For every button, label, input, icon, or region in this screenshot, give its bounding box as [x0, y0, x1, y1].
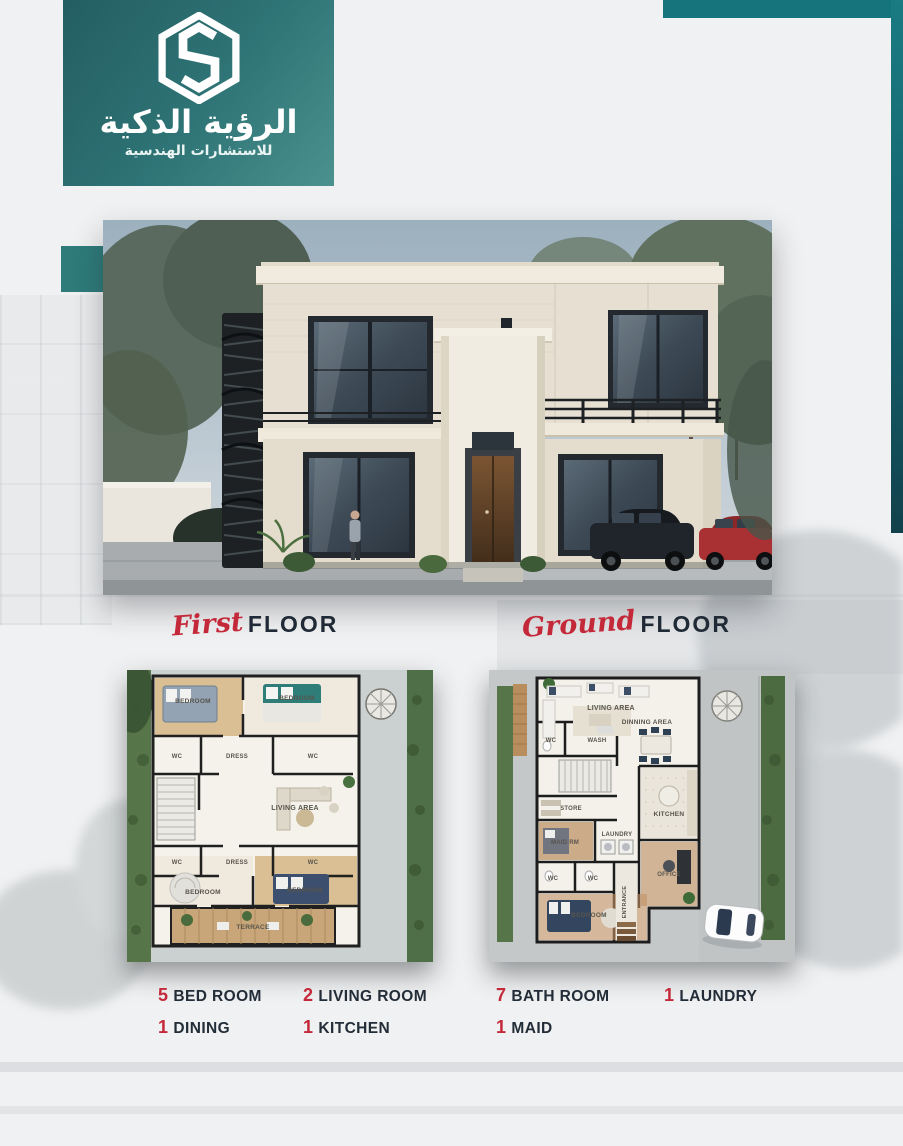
stat-laundry-count: 1: [664, 985, 674, 1005]
stat-kitchen-count: 1: [303, 1017, 313, 1037]
stat-bedrooms-label: BED ROOM: [173, 988, 261, 1005]
teal-accent-square: [61, 246, 107, 292]
external-spiral-stair: [712, 691, 742, 721]
stat-kitchen-label: KITCHEN: [318, 1020, 390, 1037]
room-label-wc: WC: [588, 876, 599, 882]
first-floor-plan: BEDROOM BEDROOM WC DRESS WC LIVING AREA …: [127, 670, 433, 962]
stat-living-rooms-count: 2: [303, 985, 313, 1005]
room-label-dress: DRESS: [226, 860, 248, 866]
watermark-step-band: [0, 1062, 903, 1072]
villa-render-photo: [103, 220, 772, 595]
right-edge-teal-strip: [891, 0, 903, 533]
room-label-store: STORE: [560, 806, 582, 812]
stat-dining: 1DINING: [158, 1017, 230, 1038]
first-floor-script: First: [171, 607, 244, 643]
room-label-bedroom: BEDROOM: [287, 887, 323, 894]
entrance-tower: [434, 328, 552, 568]
room-label-wc: WC: [308, 754, 319, 760]
external-spiral-stair: [366, 689, 396, 719]
stat-laundry-label: LAUNDRY: [679, 988, 757, 1005]
upper-window-left: [308, 316, 433, 424]
stat-kitchen: 1KITCHEN: [303, 1017, 390, 1038]
stat-maid-count: 1: [496, 1017, 506, 1037]
car: [702, 903, 766, 951]
ground-floor-label: GroundFLOOR: [522, 609, 712, 640]
ground-floor-word: FLOOR: [640, 611, 731, 637]
stat-dining-count: 1: [158, 1017, 168, 1037]
stat-bath-rooms-label: BATH ROOM: [511, 988, 609, 1005]
stat-dining-label: DINING: [173, 1020, 230, 1037]
room-label-wc: WC: [546, 738, 557, 744]
room-label-office: OFFICE: [657, 872, 681, 878]
room-label-dining-area: DINNING AREA: [622, 719, 672, 726]
ground-floor-plan: LIVING AREA DINNING AREA WC WASH STORE M…: [489, 670, 795, 962]
room-label-living-area: LIVING AREA: [587, 705, 635, 712]
room-label-bedroom: BEDROOM: [571, 912, 607, 919]
room-label-bedroom: BEDROOM: [279, 695, 315, 702]
first-floor-word: FLOOR: [248, 611, 339, 637]
logo-subtitle-arabic: للاستشارات الهندسية: [125, 143, 273, 159]
upper-window-right: [608, 310, 708, 408]
stat-living-rooms: 2LIVING ROOM: [303, 985, 427, 1006]
stat-laundry: 1LAUNDRY: [664, 985, 757, 1006]
stat-maid-label: MAID: [511, 1020, 552, 1037]
stat-bath-rooms-count: 7: [496, 985, 506, 1005]
poster-root: الرؤية الذكية للاستشارات الهندسية: [0, 0, 903, 1146]
room-label-dress: DRESS: [226, 754, 248, 760]
stairs: [157, 778, 195, 840]
first-floor-label: FirstFLOOR: [160, 609, 350, 640]
stat-bedrooms: 5BED ROOM: [158, 985, 262, 1006]
room-label-entrance: ENTRANCE: [622, 886, 628, 919]
room-label-bedroom: BEDROOM: [185, 889, 221, 896]
room-label-living-area: LIVING AREA: [271, 805, 319, 812]
stat-bedrooms-count: 5: [158, 985, 168, 1005]
stat-living-rooms-label: LIVING ROOM: [318, 988, 427, 1005]
stat-bath-rooms: 7BATH ROOM: [496, 985, 609, 1006]
room-label-maid: MAID RM: [551, 840, 579, 846]
watermark-step-band-2: [0, 1106, 903, 1114]
room-label-wc: WC: [172, 860, 183, 866]
room-label-bedroom: BEDROOM: [175, 698, 211, 705]
logo-hexagon-s-icon: [153, 12, 245, 104]
room-label-terrace: TERRACE: [236, 924, 270, 931]
logo-block: الرؤية الذكية للاستشارات الهندسية: [63, 0, 334, 186]
watermark-building: [0, 295, 112, 625]
stairs: [559, 760, 611, 792]
room-label-wc: WC: [172, 754, 183, 760]
room-label-laundry: LAUNDRY: [602, 832, 633, 838]
logo-title-arabic: الرؤية الذكية: [100, 105, 298, 140]
room-label-wc: WC: [308, 860, 319, 866]
top-right-teal-bar: [663, 0, 903, 18]
ground-floor-script: Ground: [521, 605, 636, 644]
room-label-kitchen: KITCHEN: [654, 811, 685, 818]
stat-maid: 1MAID: [496, 1017, 553, 1038]
room-label-wc: WC: [548, 876, 559, 882]
room-label-wash: WASH: [588, 738, 607, 744]
